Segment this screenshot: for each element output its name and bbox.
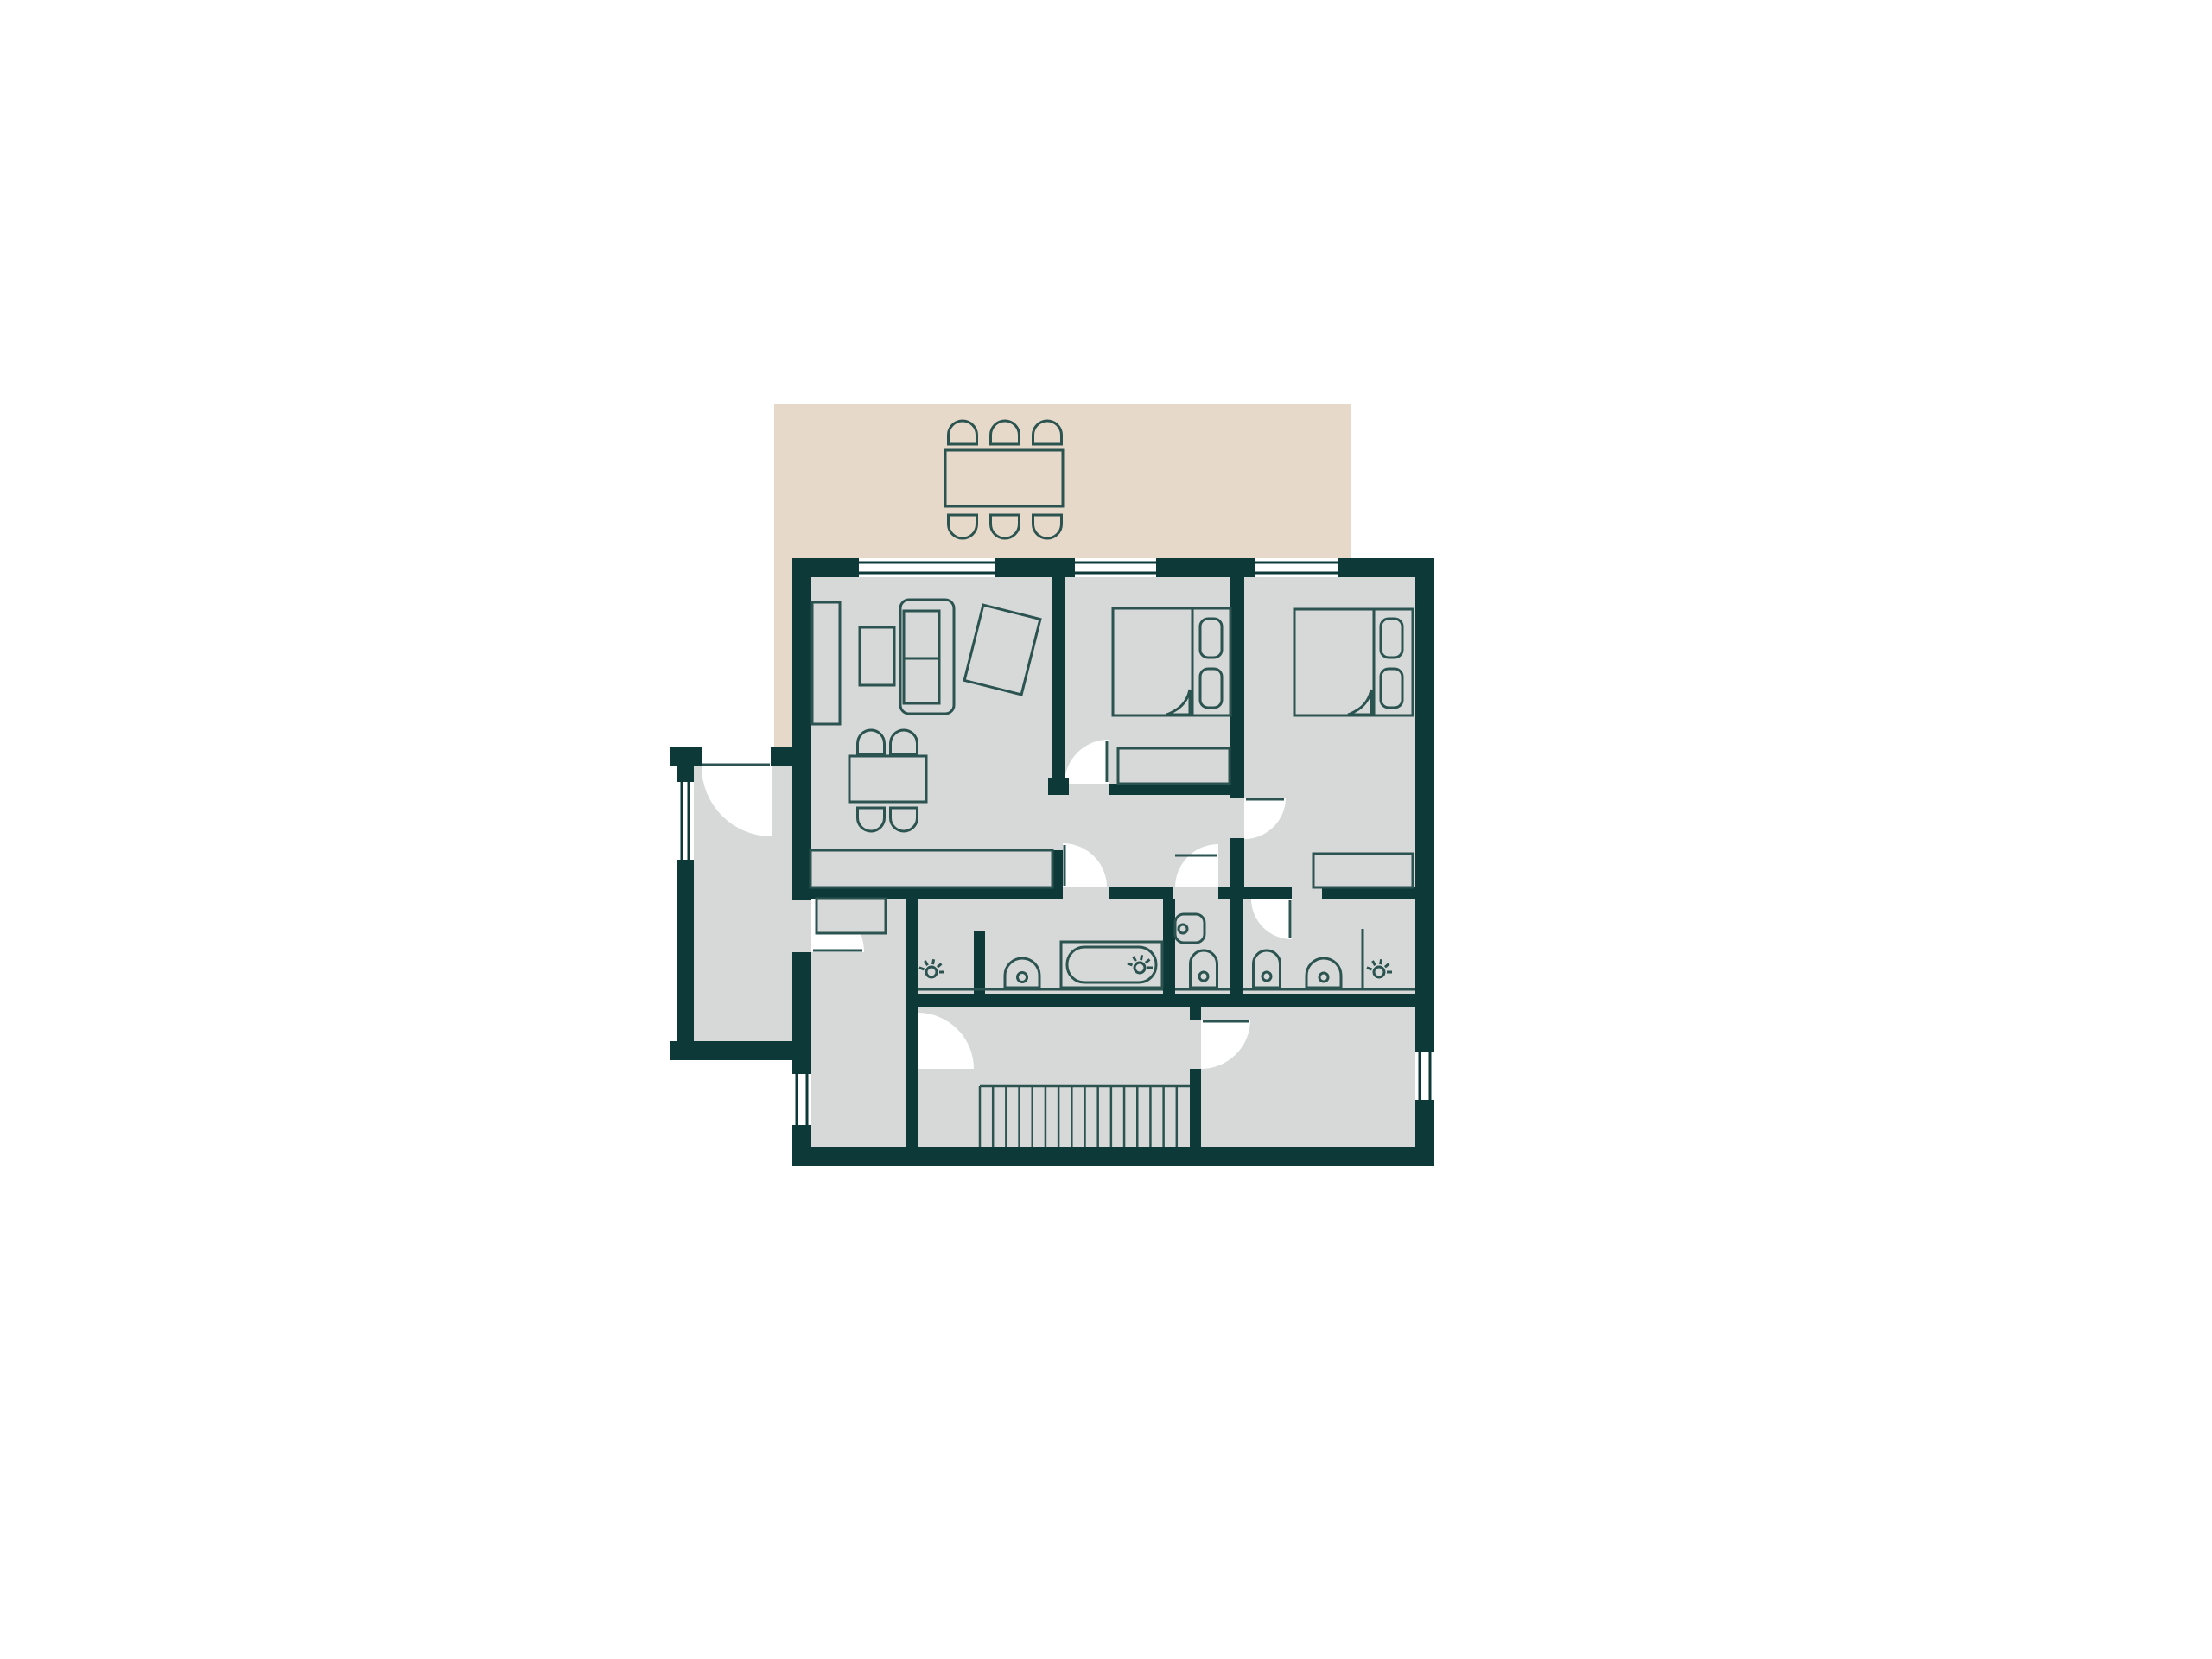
left-exterior-wall-lower: [792, 1125, 811, 1147]
vestibule-bottom-wall: [670, 1041, 811, 1060]
bathroom-wc-wall: [1163, 899, 1175, 994]
hallway-sideboard: [817, 899, 886, 933]
floor-plan-page: [0, 0, 2212, 1659]
vestibule-left-wall-lower: [677, 860, 694, 1041]
bedroom-separator-wall-upper: [1230, 577, 1244, 798]
bedroom2-window: [1255, 558, 1338, 577]
bedroom2-dresser: [1313, 854, 1413, 887]
bedroom1-bottom-wall: [1109, 784, 1230, 795]
dining-sideboard: [810, 850, 1052, 887]
living-room-right-wall: [1052, 577, 1065, 795]
shower-partition-wall: [974, 931, 985, 994]
vestibule-left-wall-upper: [677, 766, 694, 782]
bathroom-bottom-wall: [906, 994, 1415, 1007]
bedroom1-bench: [1118, 748, 1230, 784]
staircase-wall-lower: [1190, 1069, 1201, 1147]
bathroom-top-wall: [1109, 887, 1173, 899]
hall-bathroom-wall: [906, 899, 918, 1147]
bottom-exterior-wall: [792, 1147, 1434, 1166]
wc-ensuite-wall: [1230, 899, 1243, 994]
floor-plan-svg: [0, 0, 2212, 1659]
storage-window: [1415, 1052, 1434, 1100]
vestibule-window: [677, 782, 694, 860]
wc-toilet: [1191, 950, 1217, 988]
vestibule-corner-block: [670, 747, 702, 766]
hall-top-wall: [804, 887, 1050, 899]
bedroom1-window: [1075, 558, 1156, 577]
wc-top-wall: [1218, 887, 1292, 899]
ensuite-toilet: [1254, 950, 1281, 988]
left-exterior-wall-upper: [792, 558, 811, 900]
vestibule-top-wall: [771, 747, 811, 766]
hallway-window: [792, 1074, 811, 1125]
living-room-wall-end-block: [1048, 778, 1069, 795]
bedroom2-bottom-wall: [1322, 887, 1415, 899]
terrace-side-strip: [774, 558, 795, 750]
living-room-window: [859, 558, 995, 577]
staircase-wall-stub: [1190, 1007, 1201, 1020]
